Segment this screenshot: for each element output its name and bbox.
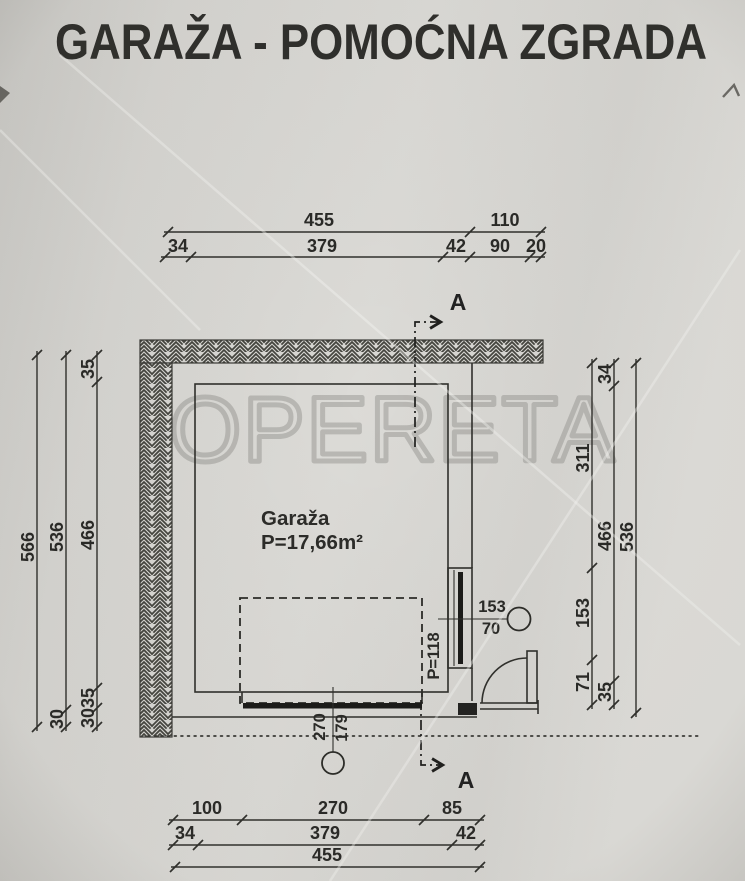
scanned-drawing-page: ? GARAŽA - POMOĆNA ZGRADA OPERETA [0, 0, 745, 881]
vignette-overlay [0, 0, 745, 881]
floor-plan-drawing: ? GARAŽA - POMOĆNA ZGRADA OPERETA [0, 0, 745, 881]
